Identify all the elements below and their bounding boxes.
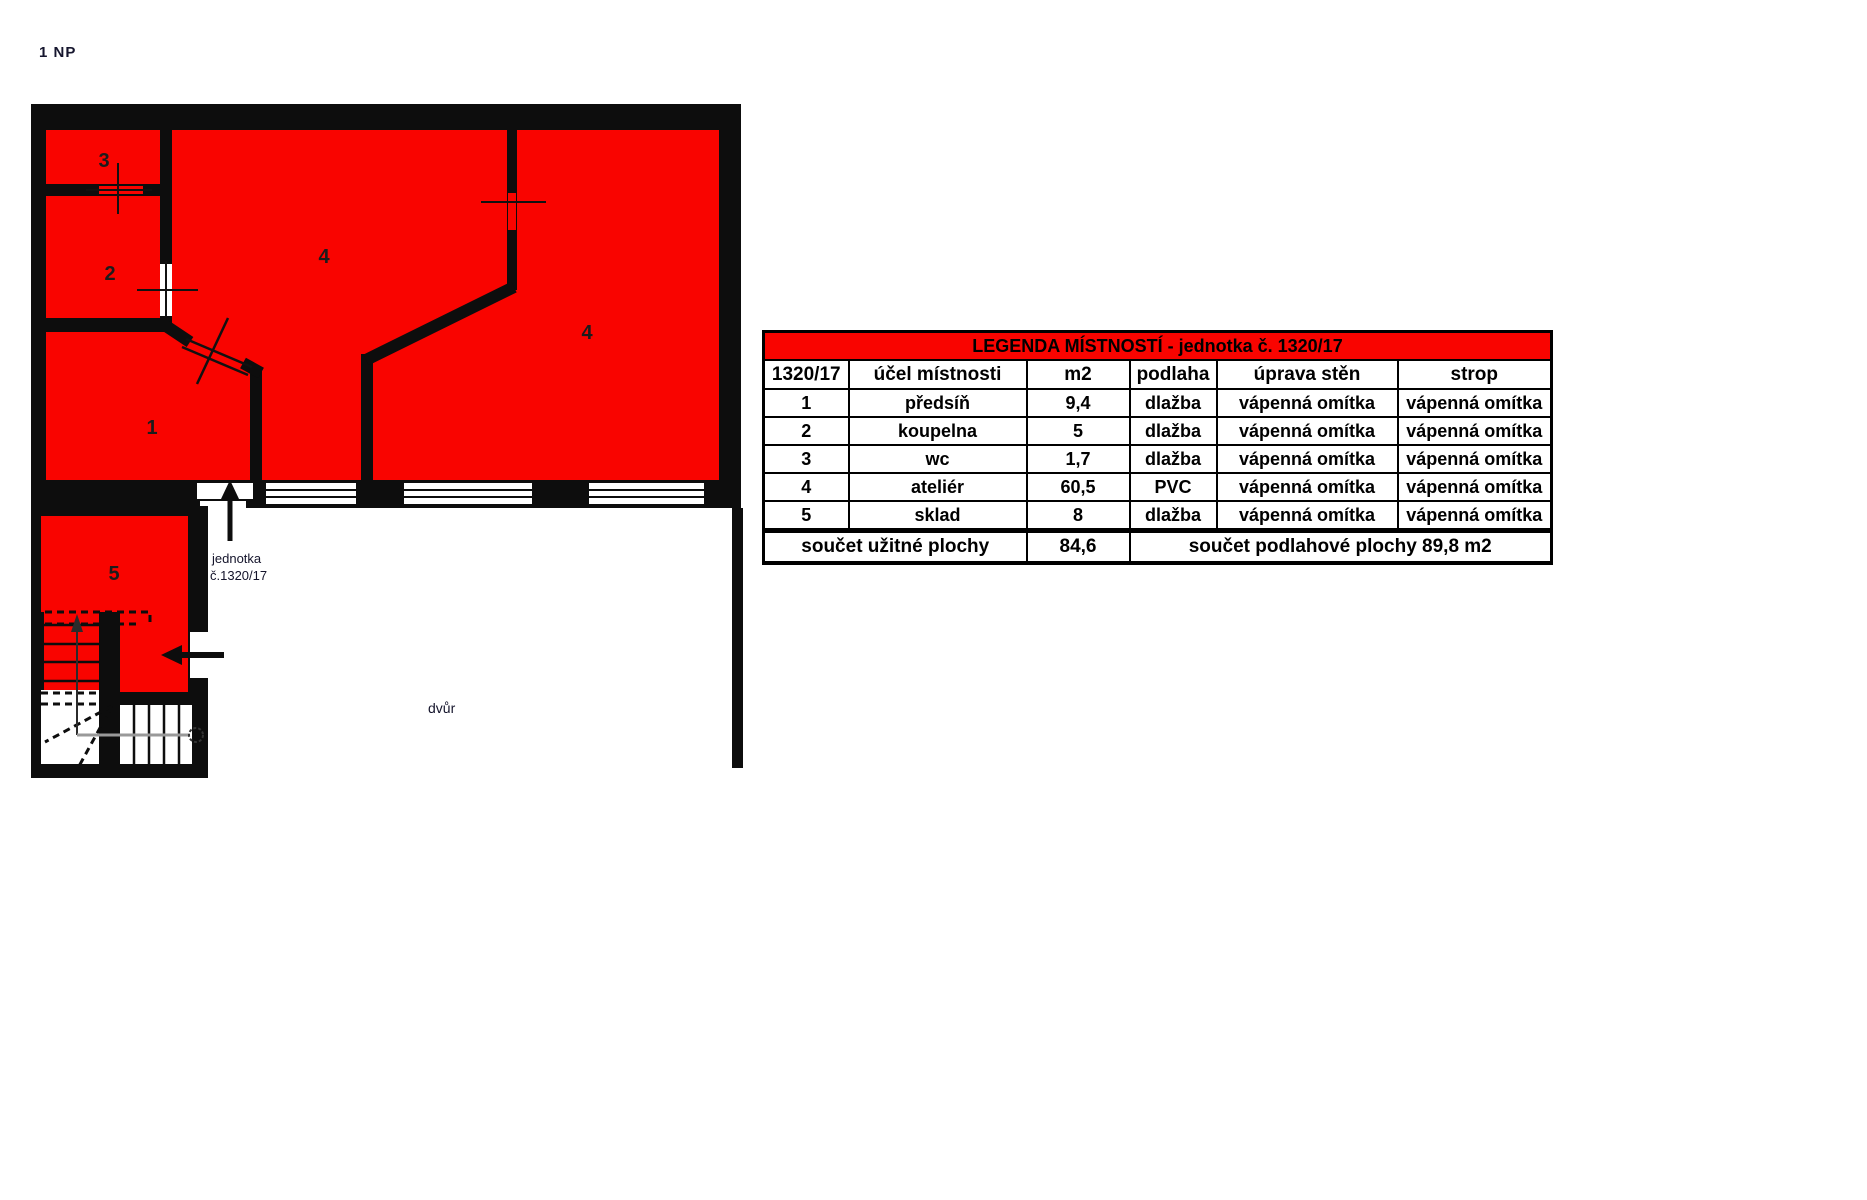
cell: 4 [764,473,849,501]
table-row: 1 předsíň 9,4 dlažba vápenná omítka vápe… [764,389,1552,417]
legend-header-row: 1320/17 účel místnosti m2 podlaha úprava… [764,360,1552,389]
cell: vápenná omítka [1398,445,1552,473]
cell: předsíň [849,389,1027,417]
unit-label-line1: jednotka [211,551,262,566]
cell: vápenná omítka [1217,389,1398,417]
unit-label-line2: č.1320/17 [210,568,267,583]
cell: vápenná omítka [1398,473,1552,501]
main-building: 3 2 1 4 4 [31,104,741,509]
window-symbol [589,483,704,504]
total-usable-label: součet užitné plochy [764,531,1027,564]
courtyard-label: dvůr [428,700,456,716]
table-row: 2 koupelna 5 dlažba vápenná omítka vápen… [764,417,1552,445]
cell: vápenná omítka [1398,501,1552,531]
table-row: 3 wc 1,7 dlažba vápenná omítka vápenná o… [764,445,1552,473]
cell: vápenná omítka [1217,473,1398,501]
col-header-floor: podlaha [1130,360,1217,389]
cell: ateliér [849,473,1027,501]
window-symbol [404,483,532,504]
cell: 3 [764,445,849,473]
cell: 5 [1027,417,1130,445]
room-number-4-right: 4 [581,322,593,344]
cell: dlažba [1130,389,1217,417]
window-symbol [266,483,356,504]
cell: vápenná omítka [1217,501,1398,531]
cell: dlažba [1130,501,1217,531]
table-row: 5 sklad 8 dlažba vápenná omítka vápenná … [764,501,1552,531]
total-usable-value: 84,6 [1027,531,1130,564]
col-header-ceiling: strop [1398,360,1552,389]
col-header-purpose: účel místnosti [849,360,1027,389]
cell: PVC [1130,473,1217,501]
stair-white-landing [41,690,99,764]
cell: 8 [1027,501,1130,531]
legend-table: LEGENDA MÍSTNOSTÍ - jednotka č. 1320/17 … [762,330,1553,565]
cell: wc [849,445,1027,473]
cell: vápenná omítka [1217,445,1398,473]
cell: vápenná omítka [1217,417,1398,445]
legend-total-row: součet užitné plochy 84,6 součet podlaho… [764,531,1552,564]
cell: 1 [764,389,849,417]
col-header-unit: 1320/17 [764,360,849,389]
cell: dlažba [1130,445,1217,473]
room-number-3: 3 [98,150,109,172]
cell: 2 [764,417,849,445]
room-number-5: 5 [108,563,119,585]
cell: 5 [764,501,849,531]
legend-title: LEGENDA MÍSTNOSTÍ - jednotka č. 1320/17 [764,332,1552,361]
room-number-1: 1 [146,417,157,439]
col-header-m2: m2 [1027,360,1130,389]
cell: sklad [849,501,1027,531]
cell: 1,7 [1027,445,1130,473]
floor-plan: 3 2 1 4 4 [0,0,800,800]
room-number-4-center: 4 [318,246,330,268]
table-row: 4 ateliér 60,5 PVC vápenná omítka vápenn… [764,473,1552,501]
cell: 60,5 [1027,473,1130,501]
staircase-block: 5 [31,506,224,778]
courtyard-right-boundary [732,508,743,768]
page: 1 NP [0,0,1867,1200]
cell: koupelna [849,417,1027,445]
cell: 9,4 [1027,389,1130,417]
room-number-2: 2 [104,263,115,285]
legend-table-container: LEGENDA MÍSTNOSTÍ - jednotka č. 1320/17 … [762,330,1553,565]
col-header-walls: úprava stěn [1217,360,1398,389]
cell: vápenná omítka [1398,389,1552,417]
legend-title-row: LEGENDA MÍSTNOSTÍ - jednotka č. 1320/17 [764,332,1552,361]
cell: dlažba [1130,417,1217,445]
cell: vápenná omítka [1398,417,1552,445]
total-floor-area-label: součet podlahové plochy 89,8 m2 [1130,531,1552,564]
